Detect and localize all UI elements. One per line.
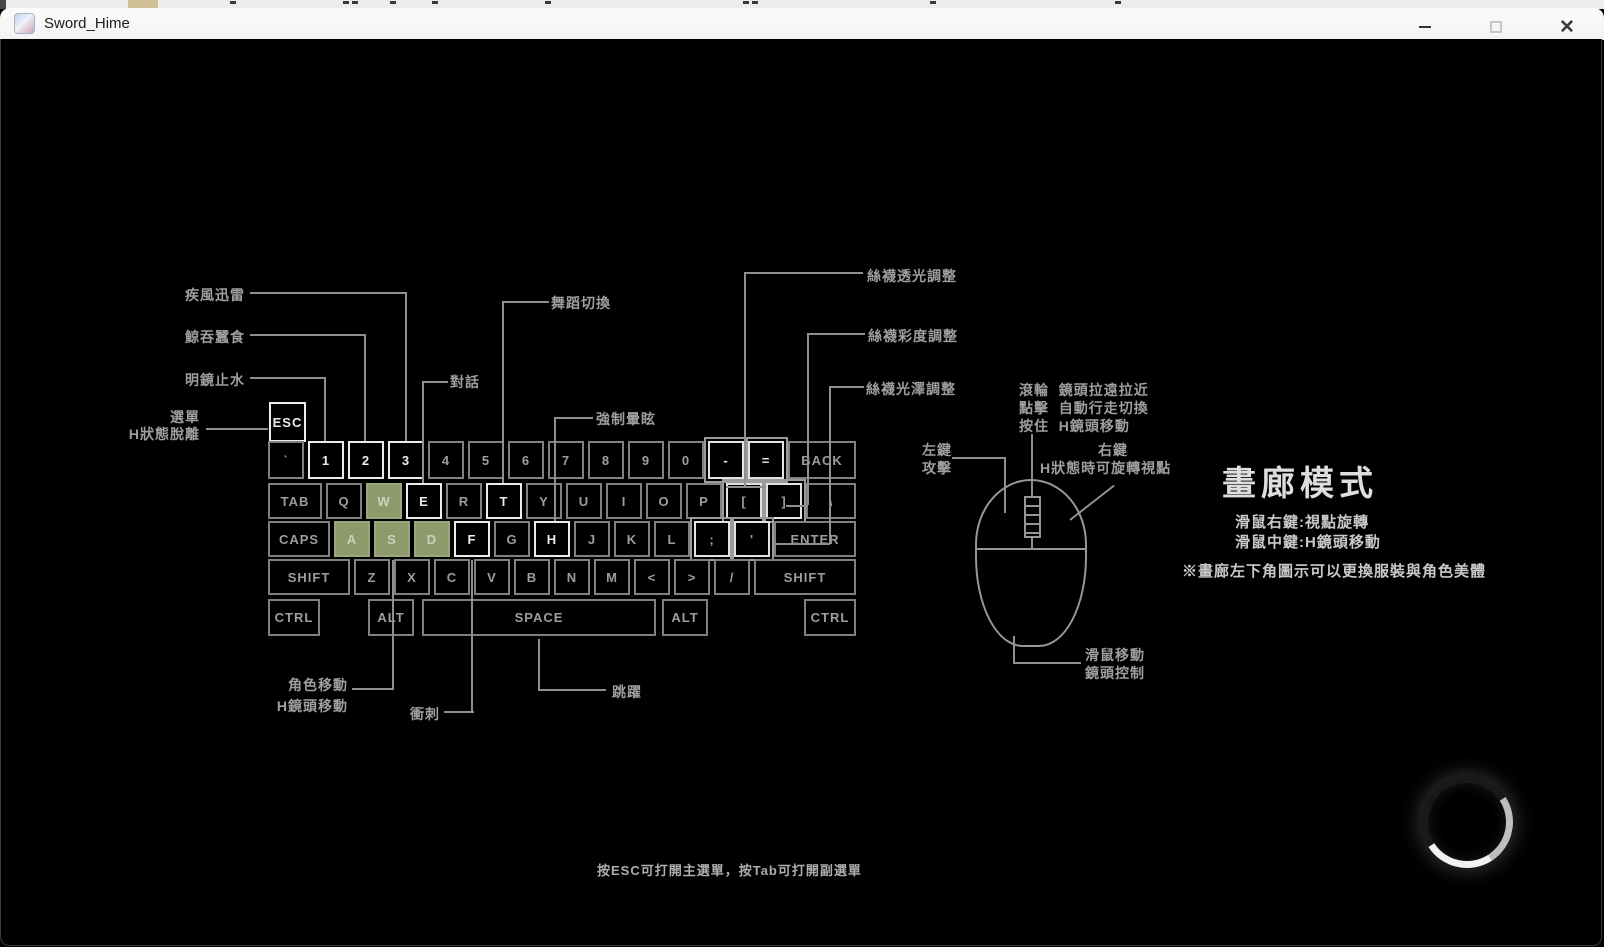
callout-character-move: 角色移動	[268, 675, 348, 695]
key-y: Y	[526, 483, 562, 519]
footer-hint: 按ESC可打開主選單，按Tab可打開副選單	[597, 860, 862, 879]
connector-line	[206, 428, 268, 430]
connector-line	[538, 639, 540, 691]
mouse-button-divider	[977, 548, 1085, 550]
gallery-mode-title: 畫廊模式	[1222, 456, 1378, 505]
connector-line	[405, 292, 407, 441]
connector-line	[423, 381, 448, 383]
key-esc: ESC	[269, 402, 306, 442]
key-gt: >	[674, 559, 710, 595]
key-backslash: \	[806, 483, 856, 519]
mouse-left-action: 攻擊	[912, 458, 952, 478]
key-minus: -	[708, 441, 744, 479]
mouse-wheel-key: 滾輪	[1019, 381, 1049, 399]
key-f: F	[454, 521, 490, 557]
key-space: SPACE	[422, 599, 656, 636]
connector-line	[744, 272, 746, 486]
callout-dance: 舞蹈切換	[551, 293, 611, 313]
callout-dialog: 對話	[450, 372, 480, 392]
connector-line	[555, 417, 593, 419]
connector-line	[744, 272, 863, 274]
connector-line	[538, 689, 606, 691]
connector-line	[502, 301, 504, 483]
callout-stocking-gloss: 絲襪光澤調整	[866, 379, 956, 399]
key-w: W	[366, 483, 402, 519]
connector-line	[807, 333, 809, 505]
callout-h-camera-move: H鏡頭移動	[268, 696, 348, 716]
mouse-hold-key: 按住	[1019, 417, 1049, 435]
connector-line	[392, 560, 394, 690]
mouse-click-action: 自動行走切換	[1059, 400, 1149, 416]
key-4: 4	[428, 441, 464, 479]
mouse-wheel-icon	[1024, 496, 1041, 538]
key-rbracket: ]	[766, 483, 802, 519]
key-z: Z	[354, 559, 390, 595]
connector-line	[786, 505, 808, 507]
key-t: T	[486, 483, 522, 519]
game-window: Sword_Hime ✕ ESC`1234567890-=BACKTABQWER…	[0, 0, 1604, 947]
key-shift: SHIFT	[268, 559, 350, 595]
connector-line	[503, 301, 549, 303]
callout-stocking-saturation: 絲襪彩度調整	[868, 326, 958, 346]
connector-line	[444, 711, 474, 713]
connector-line	[807, 333, 865, 335]
key-i: I	[606, 483, 642, 519]
connector-line	[471, 560, 473, 713]
key-j: J	[574, 521, 610, 557]
callout-skill3: 明鏡止水	[145, 370, 245, 390]
key-c: C	[434, 559, 470, 595]
key-a: A	[334, 521, 370, 557]
callout-stocking-translucency: 絲襪透光調整	[867, 266, 957, 286]
key-quote: '	[734, 521, 770, 557]
mouse-left-label: 左鍵	[912, 440, 952, 460]
key-q: Q	[326, 483, 362, 519]
key-alt: ALT	[662, 599, 708, 636]
connector-line	[726, 486, 766, 488]
connector-line	[1013, 662, 1081, 664]
gallery-hint-middle-click: 滑鼠中鍵:H鏡頭移動	[1235, 531, 1381, 552]
key-n: N	[554, 559, 590, 595]
key-back: BACK	[788, 441, 856, 479]
key-0: 0	[668, 441, 704, 479]
key-1: 1	[308, 441, 344, 479]
key-tab: TAB	[268, 483, 322, 519]
key-s: S	[374, 521, 410, 557]
key-v: V	[474, 559, 510, 595]
gallery-note: ※畫廊左下角圖示可以更換服裝與角色美體	[1182, 560, 1486, 581]
key-3: 3	[388, 441, 424, 479]
key-semicolon: ;	[694, 521, 730, 557]
key-b: B	[514, 559, 550, 595]
callout-skill2: 鯨吞蠶食	[145, 327, 245, 347]
connector-line	[829, 386, 864, 388]
key-h: H	[534, 521, 570, 557]
key-caps: CAPS	[268, 521, 330, 557]
connector-line	[829, 386, 831, 543]
key-slash: /	[714, 559, 750, 595]
callout-skill1: 疾風迅雷	[145, 285, 245, 305]
mouse-click-key: 點擊	[1019, 399, 1049, 417]
key-5: 5	[468, 441, 504, 479]
key-9: 9	[628, 441, 664, 479]
connector-line	[364, 334, 366, 441]
key-enter: ENTER	[774, 521, 856, 557]
key-lbracket: [	[726, 483, 762, 519]
key-2: 2	[348, 441, 384, 479]
connector-line	[952, 457, 1006, 459]
key-u: U	[566, 483, 602, 519]
gallery-hint-right-click: 滑鼠右鍵:視點旋轉	[1235, 511, 1369, 532]
connector-line	[554, 417, 556, 521]
connector-line	[250, 292, 406, 294]
key-equals: =	[748, 441, 784, 479]
key-m: M	[594, 559, 630, 595]
connector-line	[250, 377, 326, 379]
key-backtick: `	[268, 441, 304, 479]
key-d: D	[414, 521, 450, 557]
key-l: L	[654, 521, 690, 557]
key-x: X	[394, 559, 430, 595]
callout-h-escape: H狀態脫離	[100, 424, 200, 444]
mouse-wheel-labels: 滾輪 鏡頭拉遠拉近 點擊 自動行走切換 按住 H鏡頭移動	[1019, 381, 1149, 435]
key-6: 6	[508, 441, 544, 479]
key-8: 8	[588, 441, 624, 479]
key-o: O	[646, 483, 682, 519]
mouse-wheel-action: 鏡頭拉遠拉近	[1059, 382, 1149, 398]
key-ctrl: CTRL	[804, 599, 856, 636]
key-ctrl: CTRL	[268, 599, 320, 636]
key-alt: ALT	[368, 599, 414, 636]
key-k: K	[614, 521, 650, 557]
mouse-move-label: 滑鼠移動	[1085, 645, 1145, 665]
callout-jump: 跳躍	[612, 682, 642, 702]
key-shift: SHIFT	[754, 559, 856, 595]
key-p: P	[686, 483, 722, 519]
connector-line	[324, 377, 326, 441]
connector-line	[772, 543, 830, 545]
callout-dash: 衝刺	[408, 704, 440, 724]
key-r: R	[446, 483, 482, 519]
mouse-move-action: 鏡頭控制	[1085, 663, 1145, 683]
key-g: G	[494, 521, 530, 557]
connector-line	[352, 688, 394, 690]
mouse-hold-action: H鏡頭移動	[1059, 418, 1130, 434]
connector-line	[422, 381, 424, 483]
key-lt: <	[634, 559, 670, 595]
connector-line	[250, 334, 366, 336]
callout-stun: 強制暈眩	[596, 409, 656, 429]
mouse-right-label: 右鍵	[1098, 440, 1128, 460]
key-e: E	[406, 483, 442, 519]
mouse-right-action: H狀態時可旋轉視點	[1040, 458, 1171, 478]
